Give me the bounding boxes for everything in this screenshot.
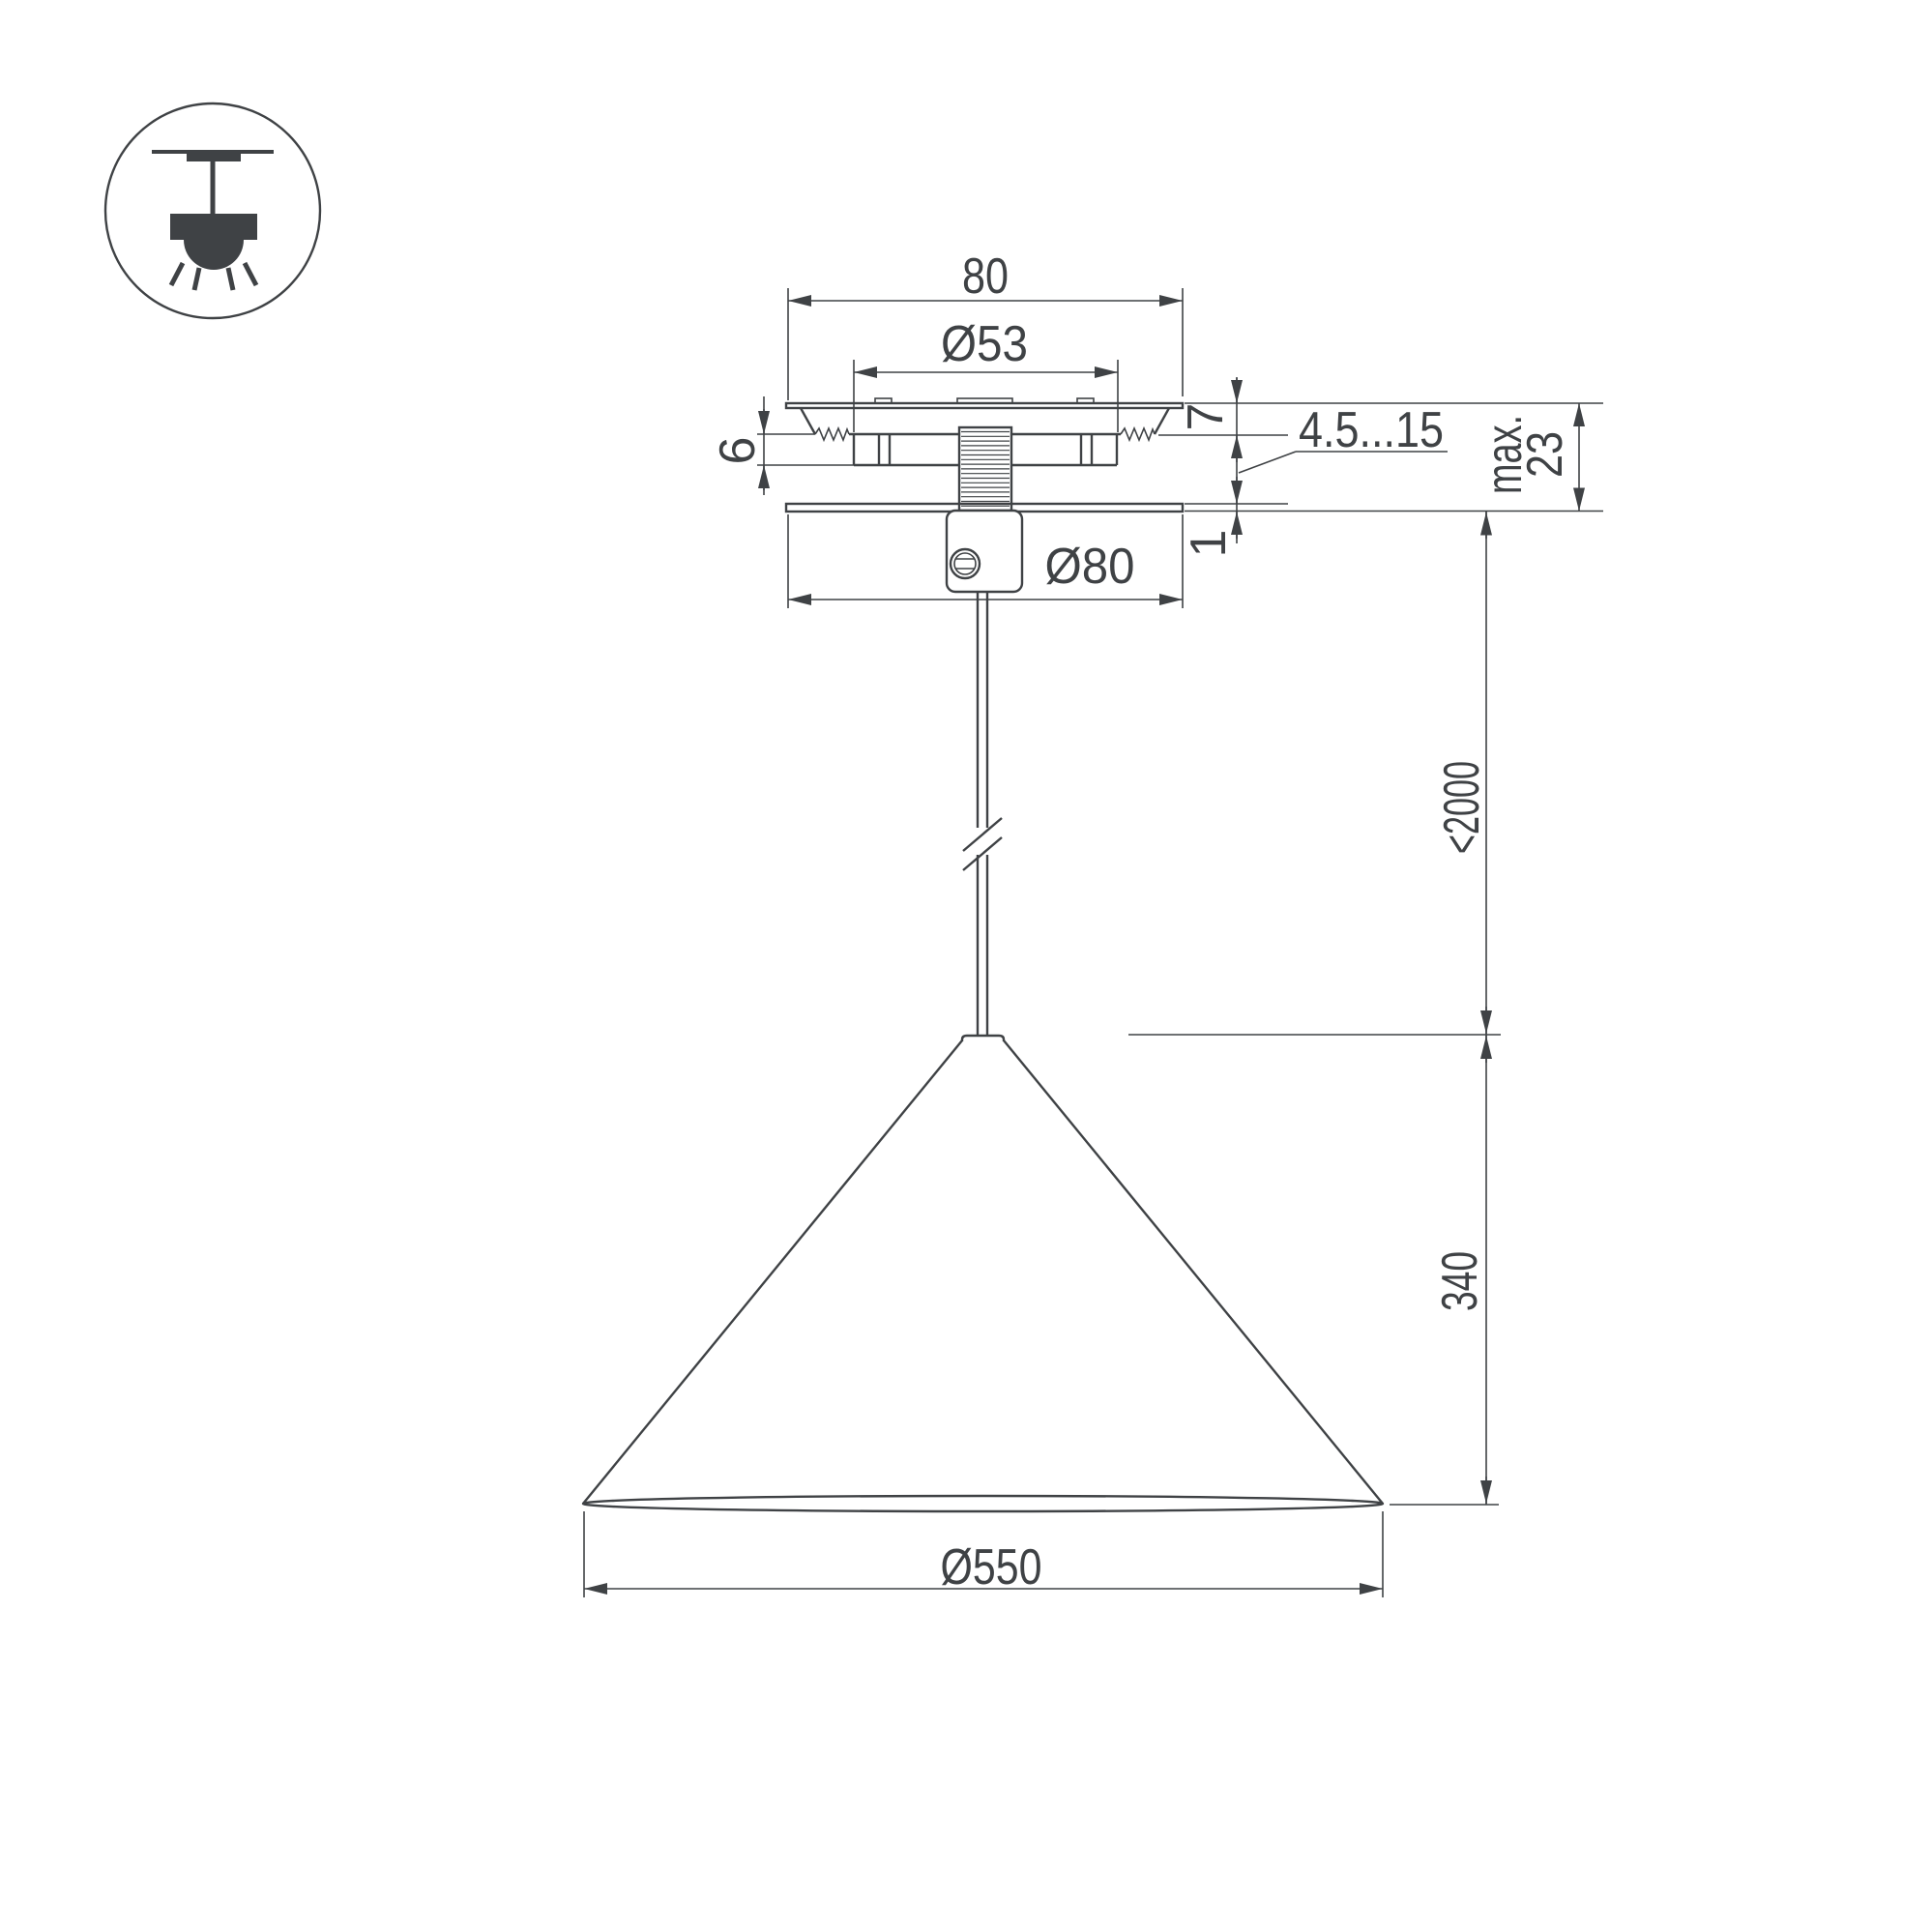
- shade-bottom-rim: [583, 1496, 1383, 1511]
- dim-1-label: 1: [1181, 530, 1237, 558]
- dim-d80-label: Ø80: [1045, 539, 1135, 595]
- dimension-max-23: max. 23: [1477, 403, 1579, 512]
- icon-lamp-body: [170, 214, 257, 240]
- shade-left-slant: [583, 1040, 962, 1504]
- flange-notch-right: [1077, 398, 1094, 403]
- dim-d53-label: Ø53: [941, 316, 1028, 372]
- suspension-cable: [963, 592, 1002, 1036]
- threaded-rod: [959, 427, 1011, 511]
- dim-7-label: 7: [1178, 403, 1234, 431]
- dim-23-label: 23: [1517, 431, 1573, 478]
- cable-gland-box: [947, 511, 1022, 592]
- right-clamp-bracket: [1081, 434, 1117, 465]
- cone-shade: [583, 1036, 1383, 1511]
- icon-lamp-dome: [184, 240, 244, 270]
- dimension-2000: <2000: [1128, 512, 1501, 1036]
- dim-2000-label: <2000: [1434, 761, 1490, 854]
- left-spring-zigzag: [815, 428, 849, 440]
- shade-right-slant: [1004, 1040, 1383, 1504]
- dimension-4-5-15: 4.5...15: [1239, 402, 1448, 473]
- icon-mount-plate: [187, 154, 241, 161]
- dim-4-5-15-label: 4.5...15: [1299, 402, 1444, 458]
- dim-d550-label: Ø550: [941, 1539, 1042, 1595]
- dim-340-label: 340: [1432, 1251, 1488, 1311]
- pendant-lamp-icon: [105, 103, 320, 318]
- right-spring-zigzag: [1121, 428, 1155, 440]
- left-clamp-bracket: [854, 434, 890, 465]
- right-slant: [1155, 408, 1169, 434]
- cable-break-symbol: [963, 818, 1002, 870]
- shade-top-cap: [962, 1036, 1004, 1041]
- dimension-d53: Ø53: [854, 316, 1118, 432]
- dimension-d550: Ø550: [584, 1511, 1383, 1597]
- technical-drawing: 80 Ø53 7 1 4.5...15 6 max.: [0, 0, 1932, 1932]
- flange-notch-center: [957, 398, 1012, 403]
- dim-80-label: 80: [962, 249, 1009, 305]
- drawing-page: 80 Ø53 7 1 4.5...15 6 max.: [0, 0, 1932, 1932]
- dim-6-label: 6: [710, 437, 766, 465]
- left-slant: [801, 408, 815, 434]
- flange-notch-left: [875, 398, 892, 403]
- dimension-6: 6: [710, 396, 766, 495]
- dimension-340: 340: [1390, 1035, 1499, 1505]
